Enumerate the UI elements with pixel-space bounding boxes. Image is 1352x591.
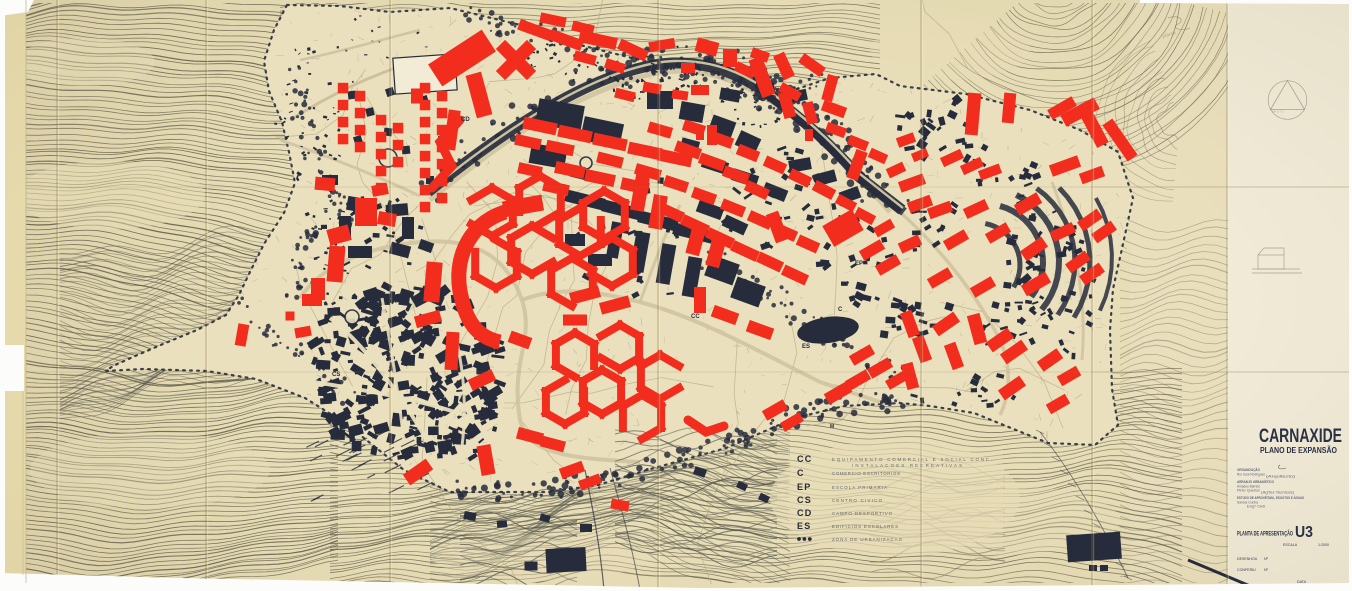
svg-text:CC: CC	[691, 314, 700, 320]
svg-text:CARNAXIDE: CARNAXIDE	[1259, 426, 1342, 447]
svg-text:Nº: Nº	[1264, 557, 1269, 561]
svg-text:ESTUDO DE APROVEITAM., ESGOTOS: ESTUDO DE APROVEITAM., ESGOTOS E ÁGUAS	[1237, 495, 1305, 500]
svg-text:(Arquitecto): (Arquitecto)	[1266, 475, 1295, 479]
svg-text:C: C	[797, 468, 805, 478]
svg-text:PLANTA DE APRESENTAÇÃO: PLANTA DE APRESENTAÇÃO	[1237, 529, 1293, 538]
svg-text:ZONA DE URBANIZACAO: ZONA DE URBANIZACAO	[832, 537, 903, 542]
svg-text:U3: U3	[1295, 524, 1313, 541]
svg-text:ARRANJO URBANÍSTICO: ARRANJO URBANÍSTICO	[1237, 479, 1274, 484]
svg-text:1:2000: 1:2000	[1318, 543, 1329, 547]
svg-text:(AgTos Tecnicos): (AgTos Tecnicos)	[1261, 491, 1294, 495]
svg-text:EP: EP	[855, 261, 863, 267]
svg-text:M: M	[830, 424, 834, 430]
svg-text:EDIFICIOS ESCOLARES: EDIFICIOS ESCOLARES	[832, 524, 898, 529]
svg-text:Rui José Rodrigues: Rui José Rodrigues	[1237, 473, 1265, 477]
svg-text:CONFERIU: CONFERIU	[1237, 568, 1256, 572]
svg-text:CC: CC	[797, 454, 812, 464]
svg-text:DESENHOU: DESENHOU	[1237, 557, 1258, 561]
svg-text:CAMPO DESPORTIVO: CAMPO DESPORTIVO	[832, 511, 893, 516]
svg-text:C: C	[838, 307, 843, 313]
svg-text:ES: ES	[797, 521, 811, 531]
svg-text:EP: EP	[797, 482, 811, 492]
svg-text:COMERCIO ESCRITORIOS: COMERCIO ESCRITORIOS	[832, 471, 900, 476]
svg-text:Pinto Queiroz: Pinto Queiroz	[1237, 489, 1260, 493]
svg-text:ORGANIZAÇÃO: ORGANIZAÇÃO	[1237, 467, 1260, 472]
svg-text:CD: CD	[461, 117, 470, 123]
svg-text:ESCOLA PRIMARIA: ESCOLA PRIMARIA	[832, 485, 887, 490]
svg-text:CD: CD	[797, 508, 812, 518]
svg-text:CS: CS	[797, 495, 812, 505]
svg-text:Nº: Nº	[1264, 568, 1269, 572]
svg-text:Engº Civil: Engº Civil	[1247, 505, 1265, 509]
svg-text:EQUIPAMENTO COMERCIAL E SOCIAL: EQUIPAMENTO COMERCIAL E SOCIAL CONC.	[832, 457, 992, 462]
svg-text:ES: ES	[802, 344, 810, 350]
svg-text:A R Q T O: A R Q T O	[1272, 110, 1284, 114]
svg-text:PLANO DE EXPANSÃO: PLANO DE EXPANSÃO	[1260, 446, 1337, 455]
svg-text:CS: CS	[332, 372, 340, 378]
svg-text:ESCALA: ESCALA	[1283, 543, 1298, 547]
